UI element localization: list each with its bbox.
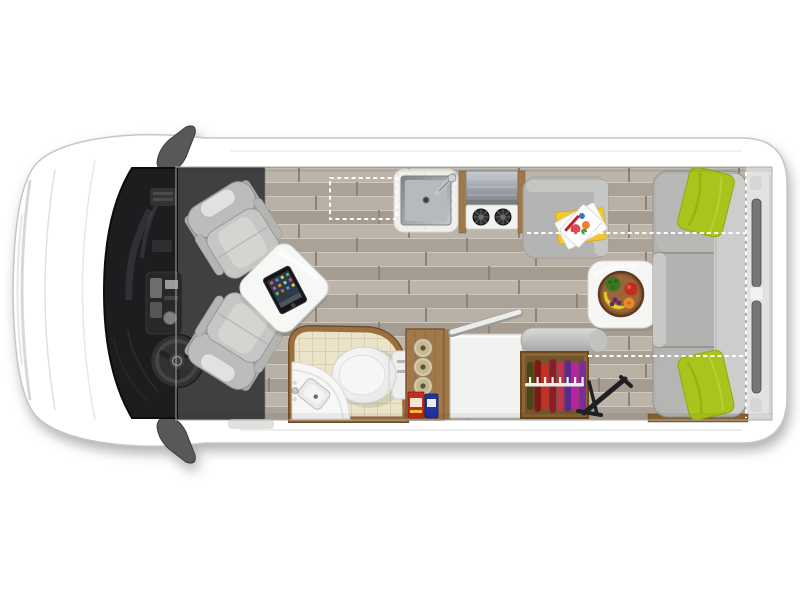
wardrobe [521,352,588,418]
hanger-rod [525,383,584,387]
apple-icon [625,283,638,296]
burner-right-icon [495,209,511,225]
canister-icon [414,339,433,396]
kitchen-counter [394,169,458,232]
floorplan-image: Play + Slumber [0,0,800,600]
van-floorplan [0,0,800,600]
pantry-shelf [406,329,444,420]
galley-wood-trim-left [459,171,466,233]
appliance-cover [466,171,518,205]
bathroom [284,329,411,419]
broccoli-icon [606,277,621,292]
sink-drain [423,197,429,203]
cooktop [466,205,518,229]
fruit-bowl [599,272,643,316]
burner-left-icon [473,209,489,225]
bedding-roll [521,328,607,353]
